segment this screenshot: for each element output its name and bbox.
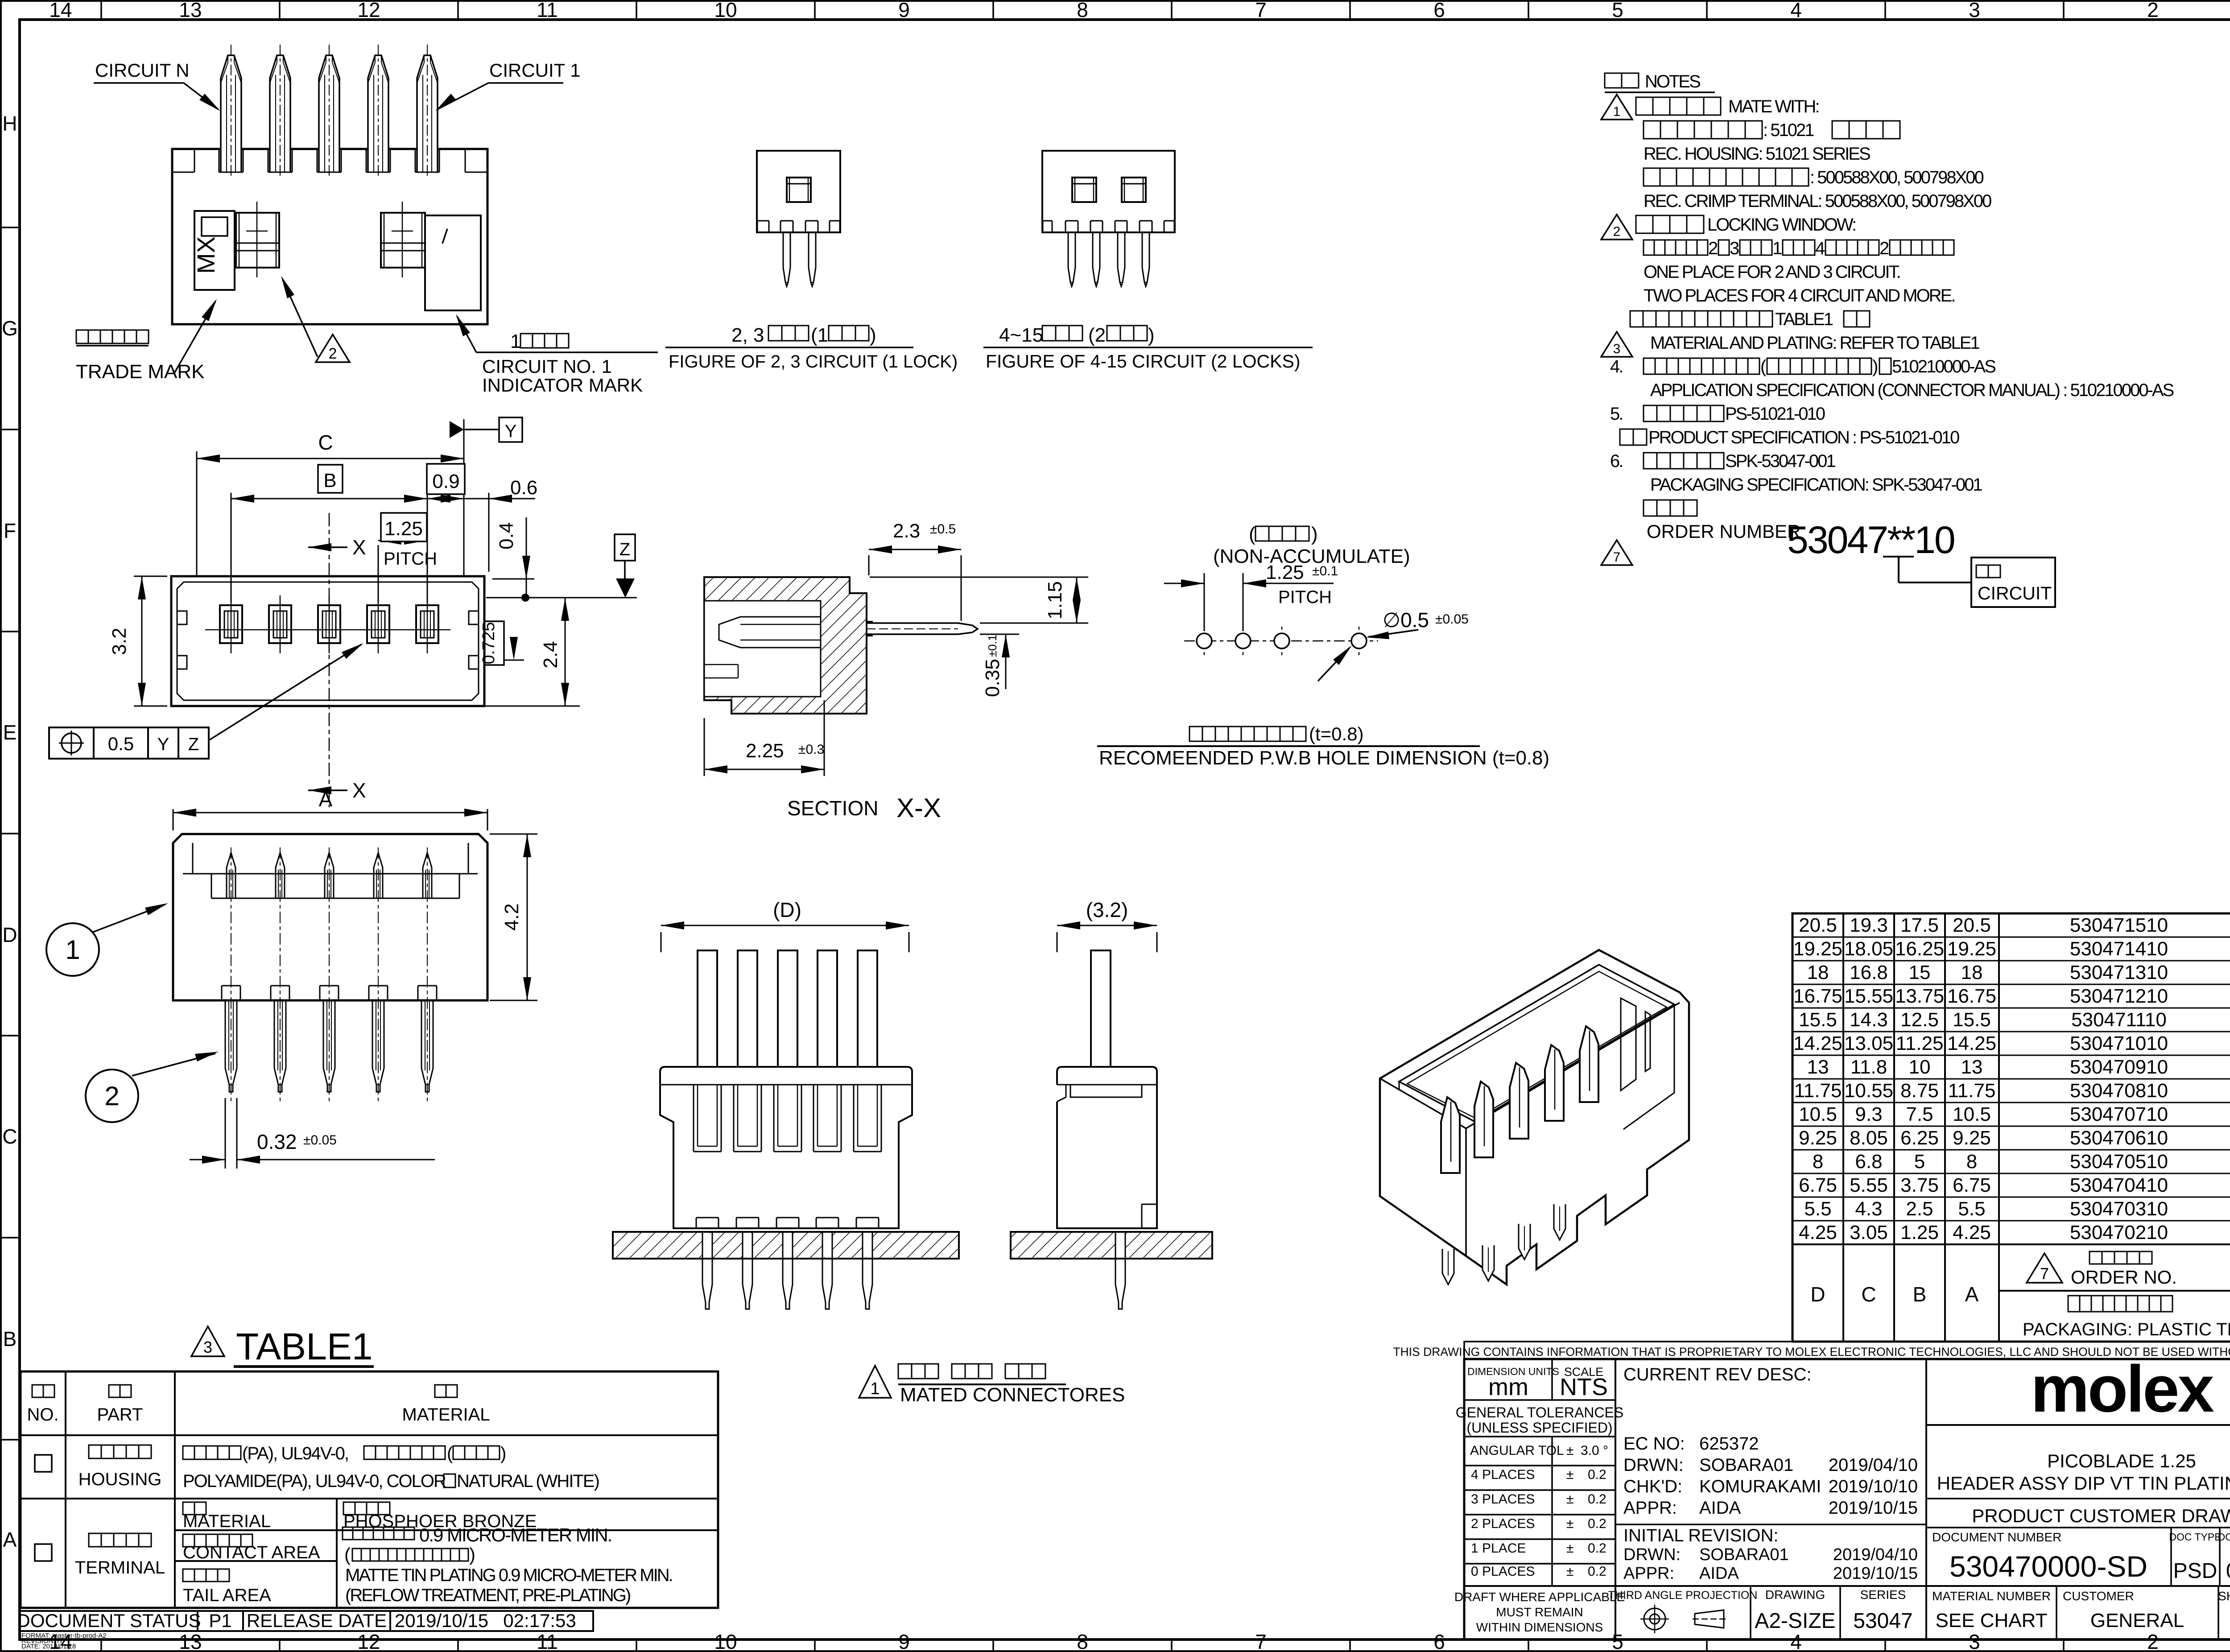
svg-text:15.5: 15.5 (1799, 1009, 1837, 1031)
svg-text:0.5: 0.5 (108, 733, 134, 754)
svg-text:MUST REMAIN: MUST REMAIN (1496, 1605, 1583, 1619)
svg-text:B: B (323, 470, 336, 491)
svg-text:F: F (4, 519, 16, 542)
svg-text:7.5: 7.5 (1906, 1103, 1933, 1125)
svg-text:0.32: 0.32 (257, 1130, 297, 1153)
svg-text:APPR:: APPR: (1623, 1564, 1674, 1583)
svg-text:(: ( (447, 1444, 453, 1463)
svg-text:X-X: X-X (896, 793, 941, 823)
svg-text:±0.05: ±0.05 (303, 1133, 337, 1148)
svg-text:ORDER NUMBER: ORDER NUMBER (1647, 521, 1801, 542)
svg-text:8.75: 8.75 (1900, 1080, 1939, 1102)
svg-text:18.05: 18.05 (1844, 938, 1893, 960)
svg-text:8: 8 (1813, 1151, 1823, 1173)
svg-text:15.5: 15.5 (1953, 1009, 1991, 1031)
svg-text:18: 18 (1807, 962, 1829, 983)
svg-text:530470710: 530470710 (2070, 1103, 2168, 1125)
svg-text:±: ± (1566, 1492, 1573, 1507)
svg-text:9.25: 9.25 (1953, 1127, 1991, 1149)
svg-text:MATERIAL: MATERIAL (402, 1405, 490, 1425)
svg-text:17.5: 17.5 (1900, 914, 1939, 936)
svg-text:): ) (1872, 357, 1877, 376)
svg-text:16.8: 16.8 (1850, 962, 1888, 983)
svg-text:PRODUCT CUSTOMER DRAWING: PRODUCT CUSTOMER DRAWING (1972, 1505, 2230, 1526)
svg-text:2: 2 (329, 345, 337, 362)
svg-text:C: C (2, 1125, 17, 1148)
svg-text:1: 1 (1613, 104, 1621, 119)
svg-text:1.25: 1.25 (1900, 1222, 1939, 1243)
svg-text:0 PLACES: 0 PLACES (1471, 1564, 1535, 1579)
svg-text:B: B (1913, 1283, 1927, 1306)
svg-text:1.15: 1.15 (1044, 581, 1066, 619)
svg-text:2.5: 2.5 (1906, 1198, 1933, 1220)
svg-text:INDICATOR MARK: INDICATOR MARK (482, 375, 643, 396)
svg-text:9: 9 (898, 1630, 910, 1652)
svg-text:530470810: 530470810 (2070, 1080, 2168, 1102)
svg-text:DOCUMENT NUMBER: DOCUMENT NUMBER (1932, 1530, 2061, 1544)
svg-text:6: 6 (1433, 0, 1445, 21)
svg-text:2: 2 (1879, 239, 1889, 258)
svg-text:12.5: 12.5 (1900, 1009, 1939, 1031)
svg-text:REC. CRIMP TERMINAL: 500588X00: REC. CRIMP TERMINAL: 500588X00, 500798X0… (1644, 191, 1991, 211)
svg-text:530471210: 530471210 (2070, 985, 2168, 1007)
svg-text:MATERIAL: MATERIAL (183, 1512, 271, 1531)
svg-text:4.25: 4.25 (1799, 1222, 1837, 1243)
svg-text:CHK'D:: CHK'D: (1623, 1477, 1682, 1496)
svg-text:: 500588X00, 500798X00: : 500588X00, 500798X00 (1810, 168, 1984, 187)
svg-text:A: A (3, 1528, 17, 1551)
svg-text:(REFLOW TREATMENT, PRE-PLATING: (REFLOW TREATMENT, PRE-PLATING) (345, 1586, 630, 1605)
svg-text:EC NO:: EC NO: (1623, 1434, 1685, 1454)
svg-text:±: ± (1566, 1443, 1573, 1458)
svg-text:G: G (2, 317, 18, 340)
svg-text:19.3: 19.3 (1850, 914, 1888, 936)
svg-text:4: 4 (1790, 0, 1802, 21)
svg-text:D: D (2, 923, 17, 946)
svg-text:14.3: 14.3 (1850, 1009, 1888, 1031)
svg-text:PICOBLADE 1.25: PICOBLADE 1.25 (2047, 1450, 2196, 1471)
svg-text:GENERAL TOLERANCES: GENERAL TOLERANCES (1456, 1404, 1623, 1421)
svg-text:6.8: 6.8 (1855, 1151, 1882, 1173)
svg-text:5: 5 (1612, 0, 1623, 21)
svg-text:): ) (1311, 523, 1318, 545)
svg-text:WITHIN DIMENSIONS: WITHIN DIMENSIONS (1476, 1620, 1603, 1634)
svg-text:CIRCUIT N: CIRCUIT N (95, 60, 190, 81)
svg-text:CIRCUIT NO. 1: CIRCUIT NO. 1 (482, 356, 612, 377)
svg-text:5.5: 5.5 (1804, 1198, 1831, 1220)
svg-text:TAIL AREA: TAIL AREA (183, 1586, 271, 1605)
svg-text:NATURAL (WHITE): NATURAL (WHITE) (457, 1471, 599, 1491)
svg-text:CIRCUIT 1: CIRCUIT 1 (489, 60, 581, 81)
svg-text:530470310: 530470310 (2070, 1198, 2168, 1220)
svg-text:MATED CONNECTORES: MATED CONNECTORES (900, 1384, 1125, 1406)
svg-text:3.0 °: 3.0 ° (1581, 1443, 1608, 1458)
svg-text:3: 3 (1730, 239, 1739, 258)
svg-text:INITIAL REVISION:: INITIAL REVISION: (1623, 1526, 1778, 1545)
svg-text:530470510: 530470510 (2070, 1151, 2168, 1173)
svg-text:RECOMEENDED P.W.B HOLE DIMENSI: RECOMEENDED P.W.B HOLE DIMENSION (t=0.8) (1099, 747, 1549, 769)
svg-text:1 PLACE: 1 PLACE (1471, 1541, 1526, 1556)
svg-text:14.25: 14.25 (1793, 1032, 1842, 1054)
svg-text:P1: P1 (209, 1610, 231, 1631)
svg-text:CURRENT REV DESC:: CURRENT REV DESC: (1623, 1365, 1812, 1384)
svg-text:TABLE1: TABLE1 (236, 1326, 373, 1367)
svg-text:±0.05: ±0.05 (1435, 612, 1469, 627)
svg-text:A: A (1965, 1283, 1979, 1306)
svg-text:7: 7 (1255, 0, 1267, 21)
svg-text:SOBARA01: SOBARA01 (1699, 1455, 1793, 1475)
svg-text:13: 13 (179, 0, 202, 21)
svg-text:A: A (319, 788, 333, 811)
svg-text:SEE CHART: SEE CHART (1935, 1610, 2047, 1631)
svg-text:0.35: 0.35 (982, 659, 1003, 697)
svg-text:A2-SIZE: A2-SIZE (1755, 1609, 1835, 1633)
svg-text:2019/10/15: 2019/10/15 (1829, 1498, 1918, 1518)
svg-text:13.75: 13.75 (1895, 985, 1944, 1007)
svg-text:H: H (2, 112, 17, 135)
svg-text:(: ( (344, 1544, 351, 1565)
svg-text:TABLE1: TABLE1 (1775, 310, 1833, 329)
svg-text:10: 10 (714, 1630, 737, 1652)
svg-text:(D): (D) (773, 898, 801, 921)
svg-text:REC. HOUSING: 51021 SERIES: REC. HOUSING: 51021 SERIES (1644, 144, 1870, 164)
svg-text:(NON-ACCUMULATE): (NON-ACCUMULATE) (1213, 545, 1410, 567)
svg-text:5.: 5. (1610, 404, 1622, 424)
svg-text:1: 1 (65, 935, 80, 965)
svg-text:DOC TYPE: DOC TYPE (2169, 1531, 2221, 1543)
svg-text:4.2: 4.2 (501, 903, 523, 930)
svg-text:(t=0.8): (t=0.8) (1309, 723, 1364, 744)
svg-text:3: 3 (1969, 0, 1980, 21)
svg-text:PACKAGING SPECIFICATION: SPK-5: PACKAGING SPECIFICATION: SPK-53047-001 (1650, 475, 1982, 495)
svg-text:2019/10/15: 2019/10/15 (395, 1610, 488, 1631)
svg-text:(: ( (1249, 523, 1255, 545)
svg-text:2: 2 (2147, 1630, 2159, 1652)
svg-text:7: 7 (1613, 550, 1621, 565)
svg-text:6.25: 6.25 (1900, 1127, 1939, 1149)
svg-text:530470410: 530470410 (2070, 1174, 2168, 1196)
svg-text:16.75: 16.75 (1947, 985, 1996, 1007)
svg-text:02:17:53: 02:17:53 (503, 1610, 576, 1631)
svg-text:SHEET NUMBER: SHEET NUMBER (2218, 1589, 2230, 1603)
svg-text:POLYAMIDE(PA), UL94V-0, COLOR: POLYAMIDE(PA), UL94V-0, COLOR (183, 1471, 446, 1491)
svg-text:2019/04/10: 2019/04/10 (1829, 1455, 1918, 1475)
svg-text:): ) (469, 1544, 475, 1565)
svg-text:NTS: NTS (1560, 1374, 1608, 1400)
svg-text:THIRD ANGLE PROJECTION: THIRD ANGLE PROJECTION (1608, 1589, 1758, 1602)
svg-text:PRODUCT SPECIFICATION : PS-510: PRODUCT SPECIFICATION : PS-51021-010 (1648, 428, 1959, 447)
svg-text:510210000-AS: 510210000-AS (1892, 357, 1995, 376)
svg-text:0.4: 0.4 (496, 522, 517, 549)
svg-text:Z: Z (619, 540, 630, 559)
svg-text:2.25: 2.25 (746, 740, 784, 762)
svg-text:19.25: 19.25 (1793, 938, 1842, 960)
svg-text:SPK-53047-001: SPK-53047-001 (1725, 451, 1835, 471)
svg-text:(1: (1 (811, 324, 828, 346)
svg-text:5.55: 5.55 (1850, 1174, 1888, 1196)
svg-text:NO.: NO. (27, 1405, 58, 1425)
svg-text:7: 7 (2040, 1264, 2049, 1283)
svg-text:(2: (2 (1088, 324, 1106, 346)
svg-text:0.2: 0.2 (1588, 1564, 1606, 1579)
svg-text:6.: 6. (1610, 451, 1622, 471)
svg-text:19.25: 19.25 (1947, 938, 1996, 960)
svg-text:1: 1 (510, 330, 521, 352)
svg-text:10.55: 10.55 (1844, 1080, 1893, 1102)
svg-text:1.25: 1.25 (1266, 562, 1304, 583)
svg-text:13.05: 13.05 (1844, 1032, 1893, 1054)
svg-text:±: ± (1566, 1467, 1573, 1482)
svg-text:10.5: 10.5 (1799, 1103, 1837, 1125)
svg-text:530470000-SD: 530470000-SD (1949, 1550, 2147, 1583)
svg-text:2: 2 (104, 1081, 119, 1111)
svg-text:530471310: 530471310 (2070, 962, 2168, 983)
svg-text:10: 10 (714, 0, 737, 21)
svg-text:8: 8 (1077, 0, 1088, 21)
svg-text:15.55: 15.55 (1844, 985, 1893, 1007)
svg-text:625372: 625372 (1699, 1434, 1759, 1454)
svg-text:0.9: 0.9 (432, 471, 459, 492)
svg-text:2, 3: 2, 3 (731, 324, 764, 346)
svg-text:ANGULAR TOL: ANGULAR TOL (1470, 1443, 1564, 1458)
svg-text:11.25: 11.25 (1896, 1032, 1944, 1054)
svg-text:): ) (1148, 324, 1155, 346)
svg-text:2: 2 (1613, 224, 1621, 239)
svg-text:13: 13 (179, 1630, 202, 1652)
svg-text:10: 10 (1909, 1056, 1931, 1078)
svg-text:530471510: 530471510 (2070, 914, 2168, 936)
svg-text:PART: PART (97, 1405, 143, 1425)
svg-text:8.05: 8.05 (1850, 1127, 1888, 1149)
svg-text:MX: MX (192, 236, 220, 274)
svg-text:10.5: 10.5 (1953, 1103, 1991, 1125)
svg-text:530470610: 530470610 (2070, 1127, 2168, 1149)
svg-text:(UNLESS SPECIFIED): (UNLESS SPECIFIED) (1466, 1420, 1612, 1436)
svg-text:TRADE MARK: TRADE MARK (76, 361, 204, 383)
svg-text:1.25: 1.25 (384, 518, 423, 540)
svg-text:DRWN:: DRWN: (1623, 1455, 1684, 1475)
svg-text:0.6: 0.6 (510, 477, 537, 499)
svg-text:530470910: 530470910 (2070, 1056, 2168, 1078)
svg-text:5: 5 (1612, 1630, 1623, 1652)
svg-text:11: 11 (537, 0, 558, 21)
svg-text:53047**10: 53047**10 (1787, 519, 1954, 562)
svg-text:11.75: 11.75 (1794, 1080, 1842, 1102)
svg-text:PACKAGING: PLASTIC TRAY: PACKAGING: PLASTIC TRAY (2023, 1320, 2230, 1339)
svg-text:C: C (318, 431, 333, 454)
svg-text:000: 000 (2226, 1559, 2230, 1583)
svg-text:MATERIAL AND PLATING: REFER TO: MATERIAL AND PLATING: REFER TO TABLE1 (1650, 333, 1979, 353)
svg-text:CONTACT AREA: CONTACT AREA (183, 1543, 320, 1562)
svg-text:KOMURAKAMI: KOMURAKAMI (1699, 1477, 1821, 1496)
svg-text:AIDA: AIDA (1699, 1498, 1741, 1518)
svg-text:Y: Y (157, 735, 169, 754)
svg-text:±0.1: ±0.1 (1312, 564, 1338, 578)
svg-text:3.75: 3.75 (1900, 1174, 1939, 1196)
svg-text:53047: 53047 (1853, 1609, 1912, 1633)
svg-text:±0.1: ±0.1 (986, 635, 999, 657)
svg-text:X: X (352, 779, 366, 802)
svg-text:2 PLACES: 2 PLACES (1471, 1516, 1535, 1531)
svg-text:530471010: 530471010 (2070, 1032, 2168, 1054)
svg-text:15: 15 (1909, 962, 1931, 983)
svg-text:CIRCUIT: CIRCUIT (1978, 583, 2052, 603)
svg-text:E: E (3, 721, 17, 744)
svg-text:11.8: 11.8 (1850, 1056, 1887, 1078)
svg-text:14.25: 14.25 (1947, 1032, 1996, 1054)
svg-text:SOBARA01: SOBARA01 (1699, 1545, 1789, 1564)
svg-text:12: 12 (357, 0, 380, 21)
svg-text:3: 3 (1613, 342, 1621, 356)
svg-text:0.2: 0.2 (1588, 1541, 1606, 1556)
svg-text:2019/10/10: 2019/10/10 (1829, 1477, 1918, 1496)
svg-text:16.75: 16.75 (1793, 985, 1842, 1007)
svg-text:X: X (352, 536, 366, 559)
svg-text:HOUSING: HOUSING (78, 1470, 162, 1489)
svg-text:12: 12 (357, 1630, 380, 1652)
svg-text:4.25: 4.25 (1953, 1222, 1991, 1243)
svg-text:±: ± (1566, 1541, 1573, 1556)
svg-text:RELEASE DATE: RELEASE DATE (247, 1610, 387, 1631)
svg-text:DOCUMENT STATUS: DOCUMENT STATUS (17, 1610, 201, 1631)
svg-text:530471410: 530471410 (2070, 938, 2168, 960)
svg-text:(3.2): (3.2) (1086, 898, 1128, 921)
svg-text:11: 11 (537, 1630, 558, 1652)
svg-text:20.5: 20.5 (1953, 914, 1991, 936)
svg-text:4 PLACES: 4 PLACES (1471, 1467, 1535, 1482)
svg-text:18: 18 (1961, 962, 1983, 983)
svg-text:PITCH: PITCH (1278, 587, 1332, 607)
svg-text:TWO PLACES FOR 4 CIRCUIT AND M: TWO PLACES FOR 4 CIRCUIT AND MORE. (1644, 286, 1954, 306)
svg-text:4.: 4. (1610, 357, 1622, 376)
svg-text:AIDA: AIDA (1699, 1564, 1739, 1583)
svg-text:3.05: 3.05 (1850, 1222, 1888, 1243)
svg-text:13: 13 (1961, 1056, 1983, 1078)
svg-text:2: 2 (2147, 0, 2159, 21)
svg-text:∅0.5: ∅0.5 (1383, 608, 1429, 632)
svg-text:PS-51021-010: PS-51021-010 (1725, 404, 1825, 424)
svg-text:Y: Y (505, 421, 517, 441)
svg-text:3.2: 3.2 (108, 628, 130, 655)
svg-text:8: 8 (1077, 1630, 1088, 1652)
svg-text:6: 6 (1433, 1630, 1445, 1652)
svg-text:FIGURE OF 4-15 CIRCUIT (2 LOCK: FIGURE OF 4-15 CIRCUIT (2 LOCKS) (986, 351, 1300, 372)
svg-text:D: D (1810, 1283, 1825, 1306)
svg-text:0.2: 0.2 (1588, 1492, 1606, 1507)
svg-text:HEADER ASSY DIP VT TIN PLATING: HEADER ASSY DIP VT TIN PLATING TYPE (1937, 1473, 2230, 1494)
svg-text:CUSTOMER: CUSTOMER (2063, 1589, 2134, 1603)
svg-text:MATTE TIN PLATING 0.9 MICRO-ME: MATTE TIN PLATING 0.9 MICRO-METER MIN. (345, 1565, 672, 1585)
svg-text:2019/10/15: 2019/10/15 (1833, 1564, 1918, 1583)
svg-text:±0.3: ±0.3 (798, 742, 824, 757)
svg-text:1: 1 (870, 1379, 880, 1398)
svg-text:2.4: 2.4 (540, 641, 562, 668)
svg-text:C: C (1861, 1283, 1876, 1306)
svg-text:mm: mm (1488, 1374, 1528, 1400)
svg-text:ONE PLACE FOR 2 AND 3 CIRCUIT.: ONE PLACE FOR 2 AND 3 CIRCUIT. (1644, 262, 1900, 282)
svg-text:NOTES: NOTES (1645, 72, 1700, 91)
svg-text:MATERIAL NUMBER: MATERIAL NUMBER (1932, 1589, 2051, 1603)
svg-text:ORDER NO.: ORDER NO. (2071, 1267, 2177, 1288)
svg-text:530470210: 530470210 (2070, 1222, 2168, 1243)
svg-text:14: 14 (49, 0, 72, 21)
svg-text:0.9 MICRO-METER MIN.: 0.9 MICRO-METER MIN. (419, 1524, 611, 1545)
svg-text:MATE WITH:: MATE WITH: (1728, 97, 1819, 116)
svg-text:4~15: 4~15 (999, 324, 1043, 346)
svg-text:Z: Z (188, 735, 199, 754)
svg-text:0.2: 0.2 (1588, 1467, 1606, 1482)
svg-text:DRAWING: DRAWING (1765, 1588, 1825, 1602)
svg-text:APPLICATION SPECIFICATION (CON: APPLICATION SPECIFICATION (CONNECTOR MAN… (1650, 380, 2174, 400)
svg-text:TERMINAL: TERMINAL (75, 1558, 165, 1578)
svg-text:1: 1 (1772, 239, 1782, 258)
svg-text:8: 8 (1966, 1151, 1977, 1173)
svg-text:2.3: 2.3 (893, 520, 920, 542)
svg-text:APPR:: APPR: (1623, 1498, 1677, 1518)
svg-text:0.2: 0.2 (1588, 1516, 1606, 1531)
svg-text:11.75: 11.75 (1948, 1080, 1996, 1102)
svg-text:): ) (870, 324, 876, 346)
svg-text:9.25: 9.25 (1799, 1127, 1837, 1149)
svg-text:GENERAL: GENERAL (2090, 1610, 2184, 1631)
svg-text:5.5: 5.5 (1958, 1198, 1985, 1220)
svg-text:4: 4 (1790, 1630, 1802, 1652)
svg-text:13: 13 (1807, 1056, 1829, 1078)
svg-text:9: 9 (898, 0, 910, 21)
svg-text:PSD: PSD (2173, 1559, 2218, 1583)
svg-text:2019/04/10: 2019/04/10 (1833, 1545, 1918, 1564)
svg-text:DRWN:: DRWN: (1623, 1545, 1681, 1564)
svg-text:SECTION: SECTION (787, 797, 878, 820)
svg-text:3: 3 (203, 1338, 212, 1356)
svg-text:3: 3 (1969, 1630, 1980, 1652)
svg-text:DATE: 2018/01/18: DATE: 2018/01/18 (21, 1643, 76, 1650)
svg-text:±: ± (1566, 1564, 1573, 1579)
svg-text:6.75: 6.75 (1799, 1174, 1837, 1196)
svg-text:PITCH: PITCH (384, 549, 437, 569)
svg-text:(PA), UL94V-0,: (PA), UL94V-0, (242, 1444, 348, 1463)
svg-text:5: 5 (1914, 1151, 1925, 1173)
svg-text:20.5: 20.5 (1799, 914, 1837, 936)
svg-text:B: B (3, 1327, 17, 1351)
svg-text:0.725: 0.725 (479, 622, 498, 664)
svg-text:±0.5: ±0.5 (930, 522, 956, 537)
svg-text:SERIES: SERIES (1860, 1588, 1906, 1602)
svg-text:molex: molex (2031, 1352, 2214, 1426)
svg-text:LOCKING WINDOW:: LOCKING WINDOW: (1707, 215, 1855, 235)
svg-text:9.3: 9.3 (1855, 1103, 1882, 1125)
svg-text:DRAFT WHERE APPLICABLE: DRAFT WHERE APPLICABLE (1454, 1590, 1625, 1604)
svg-text:4.3: 4.3 (1855, 1198, 1882, 1220)
svg-text:7: 7 (1255, 1630, 1267, 1652)
svg-text:3 PLACES: 3 PLACES (1471, 1492, 1535, 1507)
svg-text:2: 2 (1708, 239, 1718, 258)
svg-text:): ) (500, 1444, 506, 1463)
svg-text:FIGURE OF 2, 3 CIRCUIT (1 LOCK: FIGURE OF 2, 3 CIRCUIT (1 LOCK) (669, 352, 958, 372)
svg-text:530471110: 530471110 (2071, 1009, 2167, 1031)
svg-text:: 51021: : 51021 (1763, 120, 1814, 140)
svg-text:6.75: 6.75 (1953, 1174, 1991, 1196)
svg-text:DOC PART: DOC PART (2218, 1531, 2230, 1543)
svg-text:4: 4 (1815, 239, 1825, 258)
svg-text:±: ± (1566, 1516, 1573, 1531)
svg-text:16.25: 16.25 (1895, 938, 1944, 960)
